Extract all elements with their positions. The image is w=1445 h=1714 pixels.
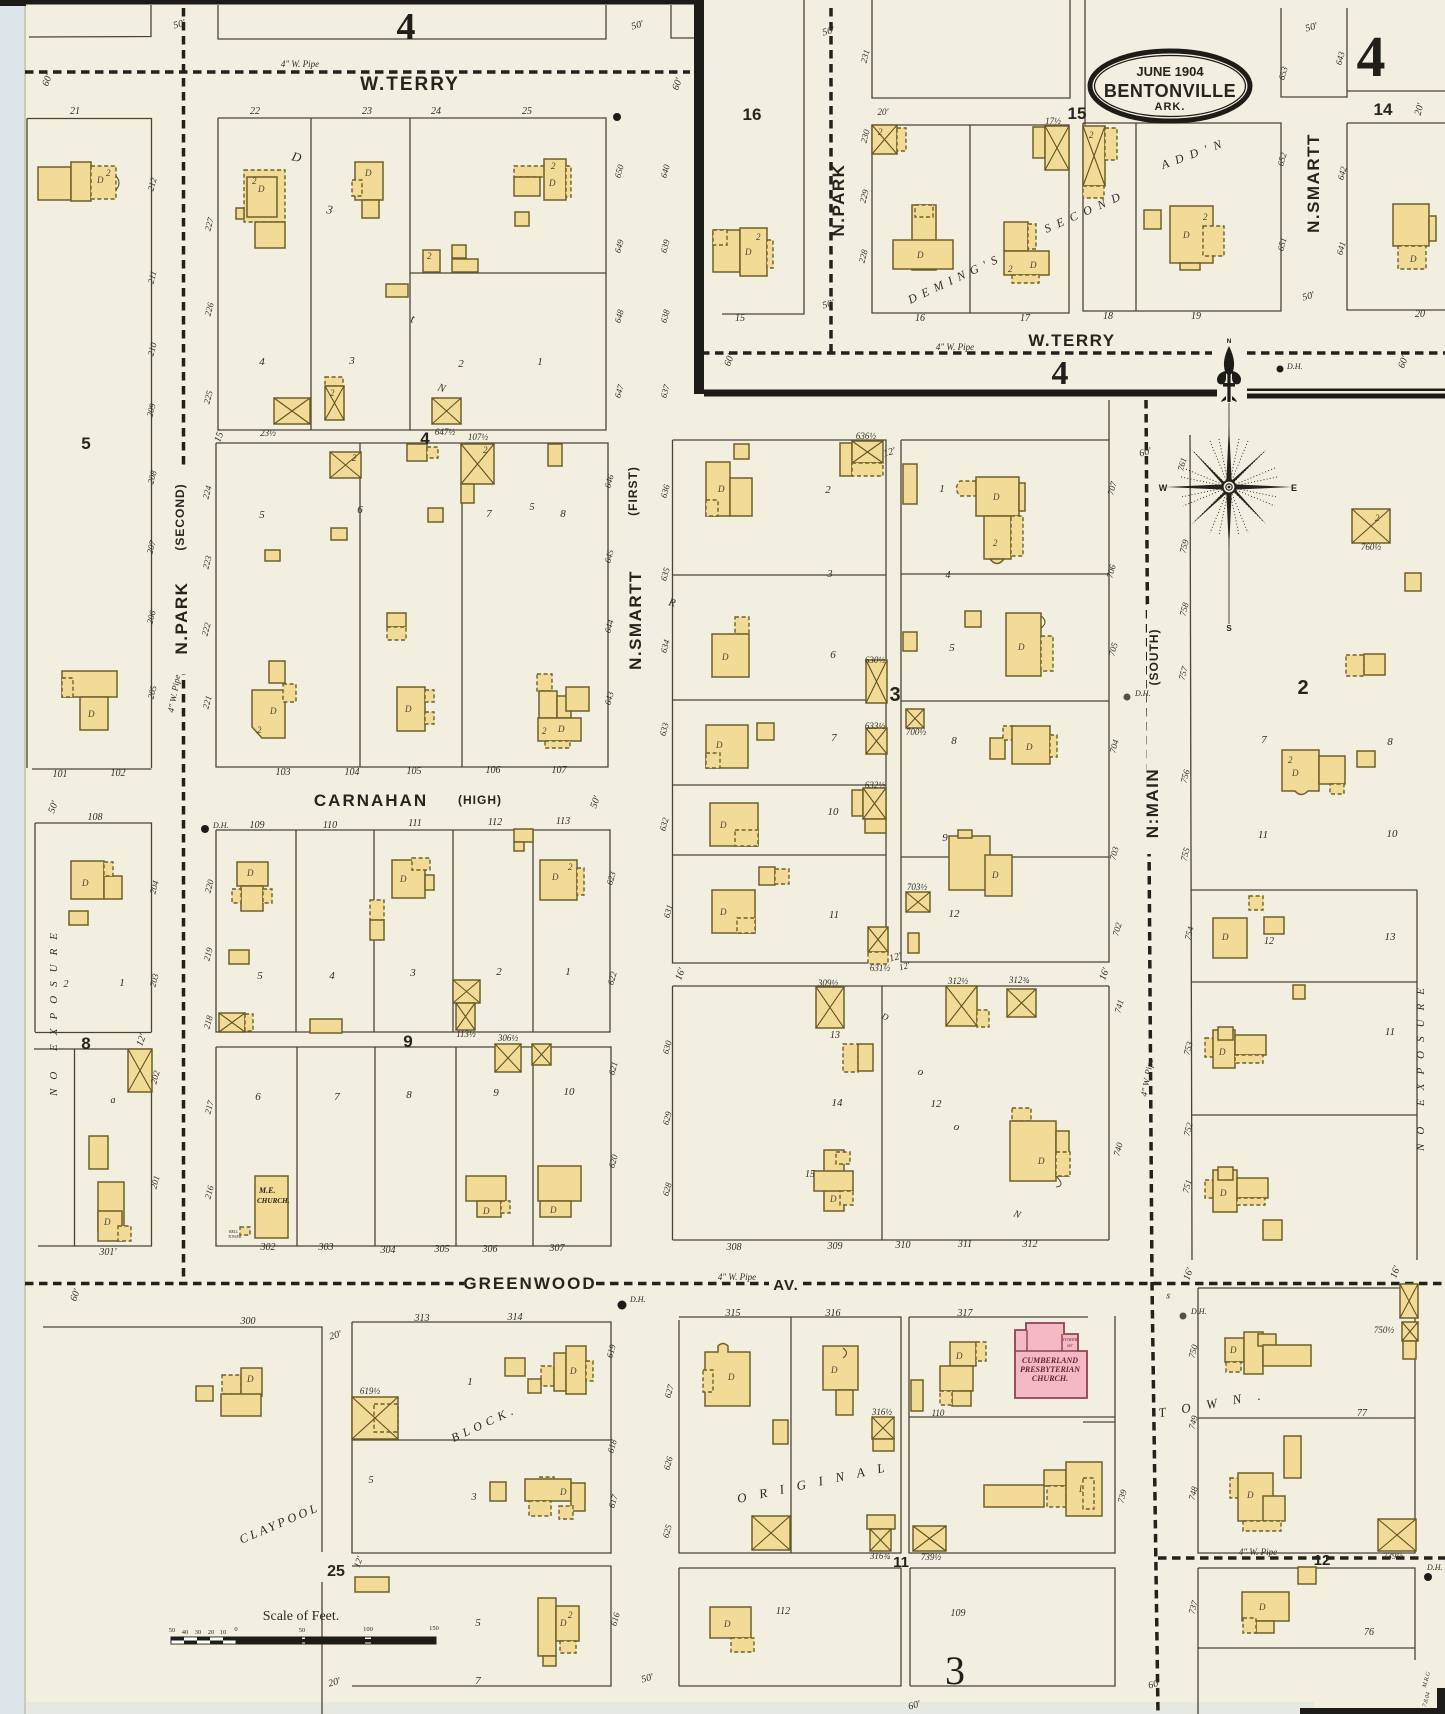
svg-text:619½: 619½ (360, 1386, 381, 1396)
svg-text:23½: 23½ (260, 428, 276, 438)
svg-text:D: D (1037, 1156, 1045, 1166)
svg-text:CARNAHAN: CARNAHAN (314, 791, 428, 810)
svg-text:113½: 113½ (456, 1029, 476, 1039)
svg-text:PRESBYTERIAN: PRESBYTERIAN (1020, 1365, 1081, 1374)
svg-text:5: 5 (530, 502, 535, 513)
svg-text:304: 304 (380, 1245, 396, 1256)
svg-text:8: 8 (1387, 736, 1393, 748)
svg-text:2: 2 (568, 1610, 573, 1620)
svg-text:M.E.: M.E. (258, 1186, 275, 1195)
svg-text:309: 309 (827, 1241, 843, 1252)
svg-text:1: 1 (939, 483, 945, 495)
svg-text:6: 6 (830, 649, 836, 661)
svg-text:18: 18 (1103, 311, 1113, 322)
svg-text:311: 311 (957, 1239, 972, 1250)
svg-text:AV.: AV. (773, 1277, 799, 1294)
svg-text:7: 7 (486, 508, 492, 520)
svg-text:D: D (96, 175, 104, 185)
svg-text:305: 305 (434, 1244, 450, 1255)
svg-text:1: 1 (565, 966, 571, 978)
svg-text:D: D (559, 1618, 567, 1628)
svg-text:D: D (81, 878, 89, 888)
svg-text:N.PARK: N.PARK (172, 582, 191, 655)
svg-text:77: 77 (1357, 1408, 1368, 1419)
svg-text:314: 314 (507, 1312, 523, 1323)
svg-text:D: D (1246, 1490, 1254, 1500)
svg-text:D: D (744, 247, 752, 257)
svg-text:D: D (830, 1365, 838, 1375)
svg-text:a: a (111, 1095, 116, 1106)
svg-text:306½: 306½ (497, 1033, 519, 1043)
svg-text:12: 12 (949, 908, 961, 920)
svg-text:17: 17 (1020, 313, 1031, 324)
svg-text:107: 107 (552, 765, 568, 776)
svg-text:GREENWOOD: GREENWOOD (463, 1274, 596, 1293)
svg-text:3: 3 (827, 569, 833, 580)
svg-text:D: D (404, 704, 412, 714)
svg-text:3: 3 (348, 355, 355, 367)
svg-text:CUMBERLAND: CUMBERLAND (1022, 1356, 1078, 1365)
svg-text:150: 150 (429, 1625, 439, 1632)
svg-text:3: 3 (945, 1648, 965, 1693)
svg-text:110: 110 (932, 1408, 945, 1418)
svg-text:6: 6 (255, 1091, 261, 1103)
svg-text:310: 310 (895, 1240, 911, 1251)
svg-text:112: 112 (488, 817, 502, 828)
svg-text:D: D (1258, 1602, 1266, 1612)
svg-text:4: 4 (1052, 355, 1069, 392)
svg-text:101: 101 (53, 769, 68, 780)
svg-text:3: 3 (471, 1492, 477, 1503)
svg-text:JUNE 1904: JUNE 1904 (1136, 64, 1204, 79)
svg-text:316¾: 316¾ (869, 1551, 891, 1561)
svg-text:4: 4 (420, 429, 430, 448)
svg-text:D: D (548, 178, 556, 188)
svg-text:12: 12 (1264, 936, 1274, 947)
svg-text:11: 11 (1258, 829, 1268, 841)
svg-text:D: D (719, 820, 727, 830)
svg-text:D.H.: D.H. (1286, 362, 1303, 371)
svg-text:D: D (246, 868, 254, 878)
svg-text:NO EXPOSURE: NO EXPOSURE (1415, 979, 1427, 1152)
svg-text:D: D (1218, 1047, 1226, 1057)
svg-text:2: 2 (993, 538, 998, 548)
svg-text:8: 8 (951, 735, 957, 747)
svg-text:(FIRST): (FIRST) (626, 466, 640, 516)
svg-text:2: 2 (1288, 755, 1293, 765)
svg-text:703½: 703½ (907, 882, 928, 892)
svg-text:CHURCH.: CHURCH. (1032, 1374, 1068, 1383)
svg-text:4" W. Pipe: 4" W. Pipe (936, 342, 974, 352)
svg-text:E: E (1291, 483, 1297, 493)
svg-text:D: D (992, 492, 1000, 502)
svg-text:2: 2 (252, 176, 257, 186)
svg-text:D: D (482, 1206, 490, 1216)
svg-text:TOWER: TOWER (1063, 1337, 1078, 1342)
svg-text:D: D (715, 740, 723, 750)
svg-text:D: D (559, 1487, 567, 1497)
svg-text:TOWER: TOWER (228, 1234, 242, 1239)
svg-text:NO EXPOSURE: NO EXPOSURE (48, 924, 60, 1097)
svg-text:1: 1 (467, 1376, 473, 1388)
svg-text:14: 14 (832, 1097, 844, 1109)
svg-text:9: 9 (403, 1032, 412, 1051)
svg-text:D: D (269, 706, 277, 716)
svg-text:W.TERRY: W.TERRY (1028, 331, 1115, 350)
svg-text:632½: 632½ (865, 780, 886, 790)
svg-text:4: 4 (1357, 24, 1386, 89)
svg-text:301': 301' (98, 1247, 117, 1258)
svg-text:4: 4 (259, 356, 265, 368)
svg-text:D: D (87, 709, 95, 719)
svg-text:2: 2 (330, 388, 335, 398)
svg-text:D: D (399, 874, 407, 884)
svg-text:4: 4 (397, 6, 416, 48)
svg-text:2: 2 (352, 453, 357, 463)
svg-text:Scale of Feet.: Scale of Feet. (263, 1609, 340, 1624)
svg-text:S: S (1226, 624, 1232, 633)
svg-text:7: 7 (1261, 734, 1267, 746)
svg-text:4: 4 (329, 970, 335, 982)
svg-text:D: D (955, 1351, 963, 1361)
svg-text:N: N (1227, 338, 1232, 345)
svg-text:9: 9 (942, 832, 948, 844)
svg-text:4" W. Pipe: 4" W. Pipe (281, 59, 319, 69)
svg-text:630½: 630½ (865, 655, 886, 665)
svg-text:308: 308 (726, 1242, 742, 1253)
svg-text:300: 300 (240, 1316, 256, 1327)
svg-text:647½: 647½ (435, 427, 456, 437)
svg-text:D: D (717, 484, 725, 494)
svg-text:106: 106 (486, 765, 501, 776)
svg-text:113: 113 (556, 816, 570, 827)
svg-text:2: 2 (551, 161, 556, 171)
svg-text:307: 307 (549, 1243, 566, 1254)
svg-text:633½: 633½ (865, 721, 886, 731)
svg-text:D.H.: D.H. (1426, 1563, 1443, 1572)
svg-text:CHURCH.: CHURCH. (257, 1197, 290, 1205)
svg-text:D.H.: D.H. (629, 1295, 646, 1304)
svg-text:3: 3 (889, 684, 900, 706)
svg-text:2: 2 (1203, 212, 1208, 222)
svg-text:312: 312 (1022, 1239, 1038, 1250)
svg-text:0: 0 (234, 1626, 237, 1633)
svg-text:25: 25 (522, 106, 532, 117)
svg-text:11: 11 (829, 909, 839, 921)
svg-text:109: 109 (250, 820, 265, 831)
svg-text:110: 110 (323, 820, 337, 831)
svg-text:D: D (569, 1366, 577, 1376)
svg-text:13: 13 (1385, 931, 1397, 943)
svg-text:(HIGH): (HIGH) (458, 793, 502, 807)
svg-text:15: 15 (735, 313, 745, 324)
svg-text:2: 2 (1297, 677, 1308, 699)
svg-text:D: D (551, 872, 559, 882)
svg-text:303: 303 (318, 1242, 334, 1253)
svg-text:11: 11 (1385, 1026, 1395, 1038)
svg-text:2: 2 (756, 232, 761, 242)
svg-text:13: 13 (830, 1030, 840, 1041)
svg-text:312¾: 312¾ (1008, 975, 1030, 985)
svg-text:739½: 739½ (921, 1552, 942, 1562)
svg-text:50: 50 (299, 1627, 306, 1634)
svg-text:N:MAIN: N:MAIN (1143, 768, 1162, 838)
svg-text:23: 23 (362, 106, 372, 117)
svg-text:D: D (1409, 254, 1417, 264)
svg-text:D: D (364, 168, 372, 178)
svg-text:4" W. Pipe: 4" W. Pipe (1239, 1547, 1277, 1557)
svg-text:4" W. Pipe: 4" W. Pipe (718, 1272, 756, 1282)
svg-text:6: 6 (357, 504, 363, 516)
svg-text:D.H.: D.H. (1190, 1307, 1207, 1316)
svg-text:22: 22 (250, 106, 260, 117)
svg-text:21: 21 (70, 106, 80, 117)
svg-text:2: 2 (496, 966, 502, 978)
svg-text:D: D (549, 1205, 557, 1215)
svg-text:D.H.: D.H. (212, 821, 229, 830)
svg-text:9: 9 (493, 1087, 499, 1099)
svg-text:16: 16 (743, 105, 762, 124)
svg-text:D: D (721, 652, 729, 662)
svg-text:309½: 309½ (817, 978, 839, 988)
svg-text:D: D (1029, 260, 1037, 270)
svg-text:D: D (991, 870, 999, 880)
svg-text:20': 20' (878, 107, 890, 117)
svg-text:N.PARK: N.PARK (829, 164, 848, 237)
svg-text:D: D (1219, 1188, 1227, 1198)
svg-text:750½: 750½ (1374, 1325, 1395, 1335)
svg-text:5: 5 (949, 642, 955, 654)
svg-text:2: 2 (427, 251, 432, 261)
svg-text:5: 5 (369, 1475, 374, 1486)
svg-text:760½: 760½ (1361, 542, 1382, 552)
svg-text:2: 2 (1008, 264, 1013, 274)
svg-text:2: 2 (64, 979, 69, 990)
svg-text:8: 8 (81, 1034, 90, 1053)
svg-text:2: 2 (542, 726, 547, 736)
svg-text:12: 12 (931, 1098, 943, 1110)
svg-text:2: 2 (1375, 513, 1380, 523)
svg-text:ARK.: ARK. (1155, 101, 1186, 113)
svg-text:2: 2 (257, 725, 262, 735)
svg-text:15: 15 (1068, 104, 1087, 123)
svg-text:8: 8 (406, 1089, 412, 1101)
svg-text:76: 76 (1364, 1627, 1374, 1638)
svg-text:10: 10 (220, 1629, 227, 1636)
svg-text:302: 302 (260, 1242, 276, 1253)
svg-text:D: D (719, 907, 727, 917)
svg-text:30: 30 (195, 1629, 202, 1636)
svg-text:739½: 739½ (1383, 1551, 1404, 1561)
svg-text:10: 10 (828, 806, 840, 818)
svg-text:40: 40 (182, 1629, 189, 1636)
svg-text:12: 12 (1314, 1552, 1331, 1569)
svg-text:2: 2 (825, 484, 831, 496)
svg-text:D: D (103, 1217, 111, 1227)
svg-text:306: 306 (482, 1244, 498, 1255)
svg-text:5: 5 (259, 509, 265, 521)
svg-text:636½: 636½ (856, 431, 877, 441)
svg-text:14: 14 (1374, 100, 1393, 119)
svg-text:N.SMARTT: N.SMARTT (1304, 133, 1323, 233)
svg-text:5: 5 (81, 434, 90, 453)
svg-text:109: 109 (951, 1608, 966, 1619)
svg-text:1: 1 (119, 977, 125, 989)
svg-text:D: D (246, 1374, 254, 1384)
svg-text:19: 19 (1191, 311, 1201, 322)
svg-text:8: 8 (560, 508, 566, 520)
svg-text:108: 108 (88, 812, 103, 823)
svg-text:D: D (1017, 642, 1025, 652)
svg-text:16: 16 (915, 313, 925, 324)
svg-text:W: W (1159, 483, 1168, 493)
svg-text:2: 2 (568, 862, 573, 872)
svg-text:7: 7 (475, 1675, 481, 1687)
svg-text:700½: 700½ (906, 727, 927, 737)
svg-text:11: 11 (893, 1554, 909, 1571)
svg-text:BENTONVILLE: BENTONVILLE (1104, 81, 1236, 101)
svg-text:316: 316 (825, 1308, 841, 1319)
svg-text:7: 7 (334, 1091, 340, 1103)
svg-text:2: 2 (458, 358, 464, 370)
svg-text:313: 313 (414, 1313, 430, 1324)
svg-text:103: 103 (276, 767, 291, 778)
svg-text:20: 20 (1415, 309, 1425, 320)
svg-text:105: 105 (407, 766, 422, 777)
svg-text:1: 1 (537, 356, 543, 368)
svg-text:5: 5 (475, 1617, 481, 1629)
svg-text:100: 100 (363, 1626, 373, 1633)
svg-text:5: 5 (257, 970, 263, 982)
svg-text:D: D (257, 184, 265, 194)
svg-text:20: 20 (208, 1629, 215, 1636)
svg-text:4: 4 (946, 570, 951, 581)
svg-text:D: D (1182, 230, 1190, 240)
svg-text:312½: 312½ (947, 976, 969, 986)
svg-text:D.H.: D.H. (1134, 689, 1151, 698)
svg-text:104: 104 (345, 767, 360, 778)
svg-text:317: 317 (957, 1308, 974, 1319)
svg-text:631½: 631½ (870, 963, 891, 973)
svg-text:2: 2 (878, 127, 883, 137)
svg-text:24: 24 (431, 106, 441, 117)
svg-text:D: D (557, 724, 565, 734)
svg-text:112: 112 (776, 1606, 790, 1617)
svg-text:315: 315 (725, 1308, 741, 1319)
svg-text:D: D (1229, 1345, 1237, 1355)
svg-text:15: 15 (805, 1169, 815, 1180)
svg-text:17½: 17½ (1045, 116, 1061, 126)
svg-text:2: 2 (106, 168, 111, 178)
svg-text:316½: 316½ (871, 1407, 893, 1417)
svg-text:N.SMARTT: N.SMARTT (626, 570, 645, 670)
svg-text:25: 25 (327, 1563, 345, 1580)
svg-text:D: D (1291, 768, 1299, 778)
svg-text:10: 10 (564, 1086, 576, 1098)
svg-text:D: D (1025, 742, 1033, 752)
svg-text:2: 2 (1089, 130, 1094, 140)
svg-text:D: D (916, 250, 924, 260)
svg-text:2: 2 (483, 445, 488, 455)
svg-text:3: 3 (409, 967, 416, 979)
svg-text:W.TERRY: W.TERRY (360, 74, 460, 95)
svg-text:D: D (1221, 932, 1229, 942)
svg-text:10: 10 (1387, 828, 1399, 840)
svg-text:(SECOND): (SECOND) (173, 483, 187, 550)
svg-text:D: D (723, 1619, 731, 1629)
svg-text:7: 7 (831, 732, 837, 744)
svg-text:111: 111 (408, 818, 422, 829)
svg-text:(SOUTH): (SOUTH) (1147, 629, 1161, 686)
svg-text:50: 50 (169, 1627, 176, 1634)
svg-text:D: D (727, 1372, 735, 1382)
svg-text:102: 102 (111, 768, 126, 779)
svg-text:107½: 107½ (468, 432, 489, 442)
svg-text:D: D (829, 1194, 837, 1204)
